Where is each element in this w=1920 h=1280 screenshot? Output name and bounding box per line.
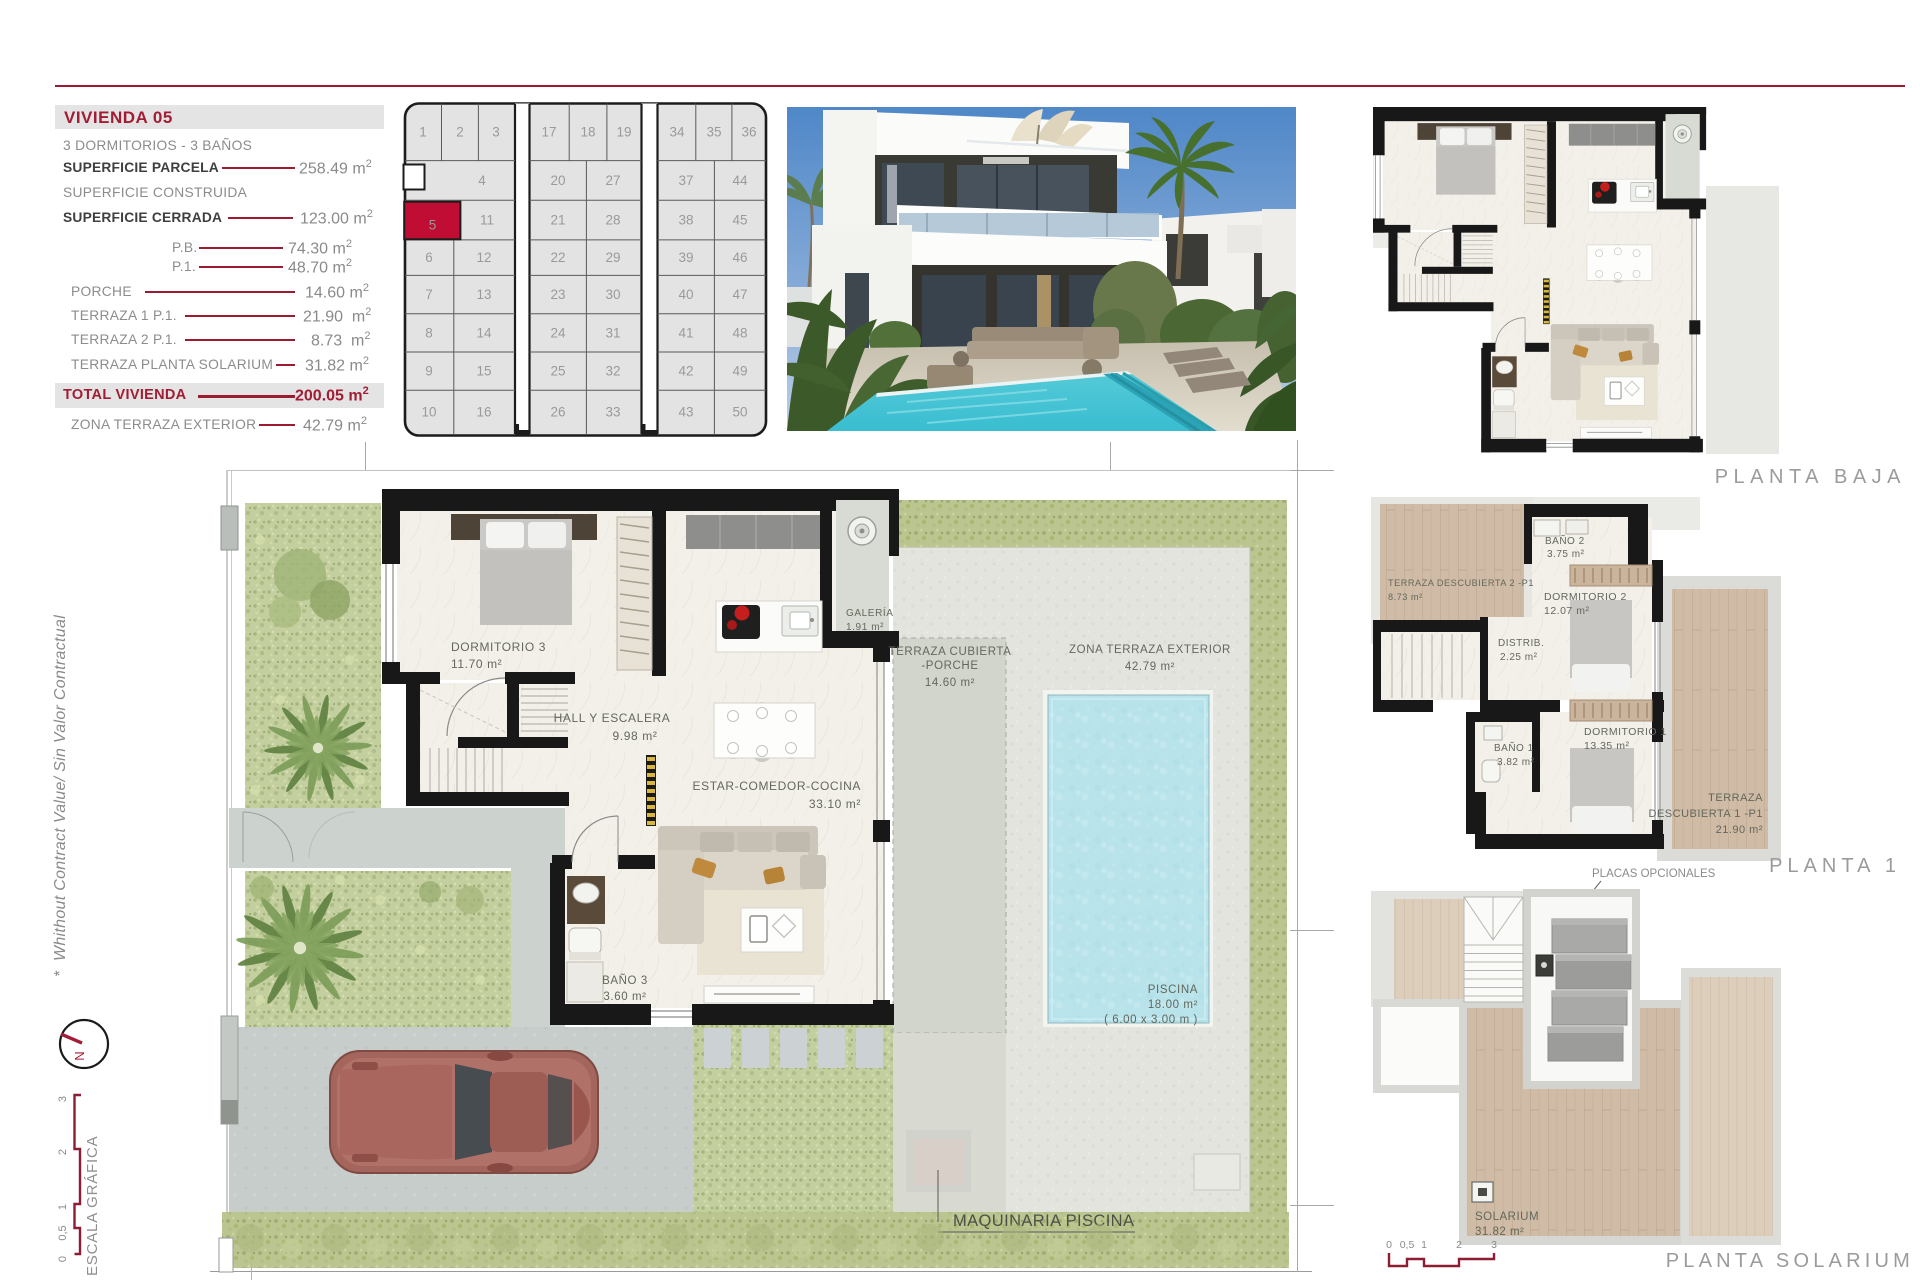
svg-text:24: 24 — [550, 326, 566, 341]
svg-text:9: 9 — [425, 364, 433, 379]
svg-text:2: 2 — [57, 1149, 69, 1155]
svg-text:25: 25 — [550, 364, 565, 379]
svg-text:21: 21 — [550, 213, 565, 228]
svg-text:TERRAZA DESCUBIERTA 2 -P1: TERRAZA DESCUBIERTA 2 -P1 — [1388, 578, 1534, 588]
svg-text:PISCINA: PISCINA — [1148, 984, 1198, 996]
svg-text:33.10 m²: 33.10 m² — [809, 797, 861, 811]
svg-text:44: 44 — [732, 173, 748, 188]
svg-text:3: 3 — [57, 1096, 69, 1102]
svg-text:49: 49 — [732, 364, 747, 379]
svg-text:1: 1 — [57, 1204, 69, 1210]
svg-text:31: 31 — [605, 326, 620, 341]
svg-text:12: 12 — [476, 250, 491, 265]
svg-text:32: 32 — [605, 364, 620, 379]
svg-text:PLANTA 1: PLANTA 1 — [1769, 855, 1901, 877]
svg-text:18: 18 — [580, 125, 595, 140]
svg-text:13.35 m²: 13.35 m² — [1584, 740, 1629, 752]
svg-text:47: 47 — [732, 287, 747, 302]
svg-text:GALERÍA: GALERÍA — [846, 606, 894, 619]
svg-text:43: 43 — [678, 405, 693, 420]
svg-text:DORMITORIO 3: DORMITORIO 3 — [451, 640, 546, 654]
svg-text:31.82 m²: 31.82 m² — [1475, 1226, 1524, 1238]
svg-text:SOLARIUM: SOLARIUM — [1475, 1211, 1539, 1223]
svg-text:0: 0 — [57, 1256, 69, 1262]
svg-text:18.00 m²: 18.00 m² — [1148, 999, 1198, 1011]
svg-text:PLANTA BAJA: PLANTA BAJA — [1715, 466, 1906, 488]
svg-text:0,5: 0,5 — [57, 1225, 69, 1240]
svg-text:29: 29 — [605, 250, 620, 265]
svg-text:ESTAR-COMEDOR-COCINA: ESTAR-COMEDOR-COCINA — [693, 779, 861, 793]
svg-text:HALL Y ESCALERA: HALL Y ESCALERA — [554, 711, 671, 725]
svg-text:3.60 m²: 3.60 m² — [603, 991, 646, 1003]
svg-text:37: 37 — [678, 173, 693, 188]
svg-text:11: 11 — [480, 213, 494, 228]
svg-text:DORMITORIO 1: DORMITORIO 1 — [1584, 726, 1667, 738]
svg-text:46: 46 — [732, 250, 747, 265]
svg-text:48: 48 — [732, 326, 747, 341]
svg-text:8.73 m²: 8.73 m² — [1388, 592, 1423, 602]
svg-text:42: 42 — [678, 364, 693, 379]
svg-text:45: 45 — [732, 213, 747, 228]
svg-text:33: 33 — [605, 405, 620, 420]
svg-text:1.91 m²: 1.91 m² — [846, 622, 884, 633]
svg-text:11.70 m²: 11.70 m² — [451, 657, 502, 671]
svg-text:13: 13 — [476, 287, 491, 302]
svg-text:1: 1 — [1421, 1239, 1427, 1251]
svg-text:10: 10 — [421, 405, 436, 420]
svg-text:42.79 m²: 42.79 m² — [1125, 661, 1175, 673]
svg-text:BAÑO 3: BAÑO 3 — [602, 974, 648, 987]
svg-text:20: 20 — [550, 173, 565, 188]
svg-text:19: 19 — [616, 125, 631, 140]
svg-text:3.75 m²: 3.75 m² — [1547, 549, 1585, 560]
svg-text:BAÑO 1: BAÑO 1 — [1494, 741, 1534, 754]
svg-text:50: 50 — [732, 405, 747, 420]
svg-text:14: 14 — [476, 326, 492, 341]
svg-text:2.25 m²: 2.25 m² — [1500, 652, 1538, 663]
svg-text:2: 2 — [1456, 1239, 1462, 1251]
svg-text:PLACAS OPCIONALES: PLACAS OPCIONALES — [1592, 868, 1716, 880]
svg-text:26: 26 — [550, 405, 565, 420]
svg-text:28: 28 — [605, 213, 620, 228]
svg-text:TERRAZA: TERRAZA — [1708, 792, 1763, 804]
svg-text:-PORCHE: -PORCHE — [921, 660, 978, 672]
svg-text:N: N — [72, 1051, 87, 1060]
svg-text:DORMITORIO 2: DORMITORIO 2 — [1544, 591, 1627, 603]
svg-text:1: 1 — [419, 125, 427, 140]
svg-text:36: 36 — [741, 125, 756, 140]
svg-text:( 6.00 x 3.00 m ): ( 6.00 x 3.00 m ) — [1104, 1014, 1198, 1026]
svg-text:3: 3 — [1491, 1239, 1497, 1251]
svg-text:6: 6 — [425, 250, 433, 265]
svg-text:27: 27 — [605, 173, 620, 188]
svg-text:3.82 m²: 3.82 m² — [1497, 757, 1535, 768]
svg-text:12.07 m²: 12.07 m² — [1544, 605, 1589, 617]
svg-text:ESCALA GRÁFICA: ESCALA GRÁFICA — [84, 1136, 101, 1276]
svg-text:TERRAZA CUBIERTA: TERRAZA CUBIERTA — [889, 646, 1012, 658]
svg-text:4: 4 — [478, 173, 486, 188]
svg-text:BAÑO 2: BAÑO 2 — [1545, 534, 1585, 547]
svg-text:15: 15 — [476, 364, 491, 379]
svg-text:22: 22 — [550, 250, 565, 265]
svg-text:21.90 m²: 21.90 m² — [1716, 824, 1763, 836]
svg-text:30: 30 — [605, 287, 620, 302]
svg-text:7: 7 — [425, 287, 433, 302]
svg-text:0: 0 — [1386, 1239, 1392, 1251]
svg-text:DISTRIB.: DISTRIB. — [1498, 638, 1544, 649]
svg-text:23: 23 — [550, 287, 565, 302]
svg-text:14.60 m²: 14.60 m² — [925, 677, 975, 689]
svg-text:38: 38 — [678, 213, 693, 228]
svg-text:ZONA TERRAZA EXTERIOR: ZONA TERRAZA EXTERIOR — [1069, 644, 1231, 656]
svg-text:17: 17 — [541, 125, 556, 140]
svg-text:DESCUBIERTA 1 -P1: DESCUBIERTA 1 -P1 — [1649, 808, 1763, 820]
svg-text:41: 41 — [678, 326, 693, 341]
svg-text:39: 39 — [678, 250, 693, 265]
svg-text:9.98 m²: 9.98 m² — [613, 729, 658, 743]
svg-text:5: 5 — [429, 218, 437, 233]
svg-text:35: 35 — [706, 125, 721, 140]
svg-text:0,5: 0,5 — [1400, 1239, 1415, 1251]
svg-text:8: 8 — [425, 326, 433, 341]
svg-text:34: 34 — [669, 125, 685, 140]
svg-text:16: 16 — [476, 405, 491, 420]
svg-text:40: 40 — [678, 287, 693, 302]
svg-text:3: 3 — [492, 125, 500, 140]
svg-text:2: 2 — [456, 125, 464, 140]
svg-text:PLANTA SOLARIUM: PLANTA SOLARIUM — [1666, 1250, 1914, 1272]
